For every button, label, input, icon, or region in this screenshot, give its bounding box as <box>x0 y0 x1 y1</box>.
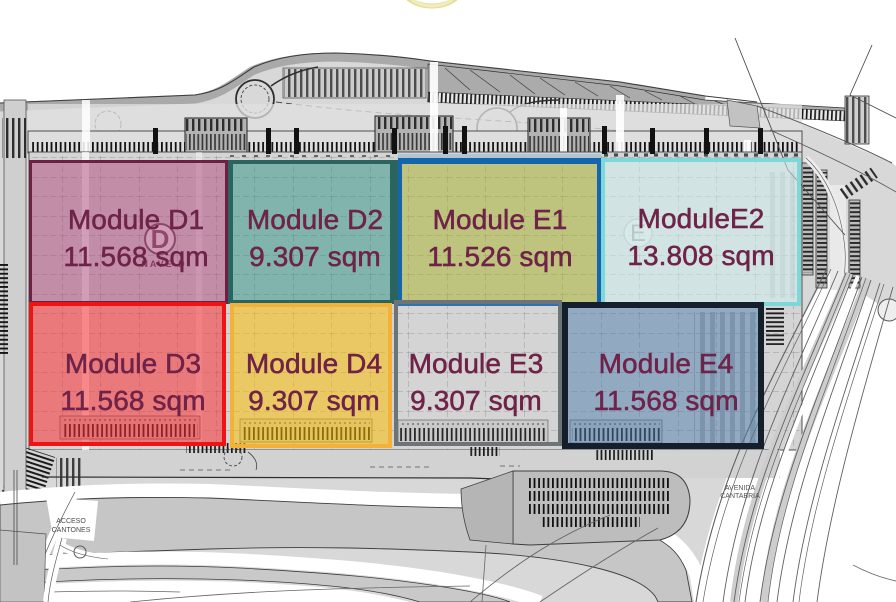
svg-text:CANTABRIA: CANTABRIA <box>720 493 760 500</box>
svg-text:ACCESO: ACCESO <box>56 518 86 525</box>
svg-text:AVENIDA: AVENIDA <box>725 485 756 492</box>
svg-text:CANTONES: CANTONES <box>52 527 91 534</box>
